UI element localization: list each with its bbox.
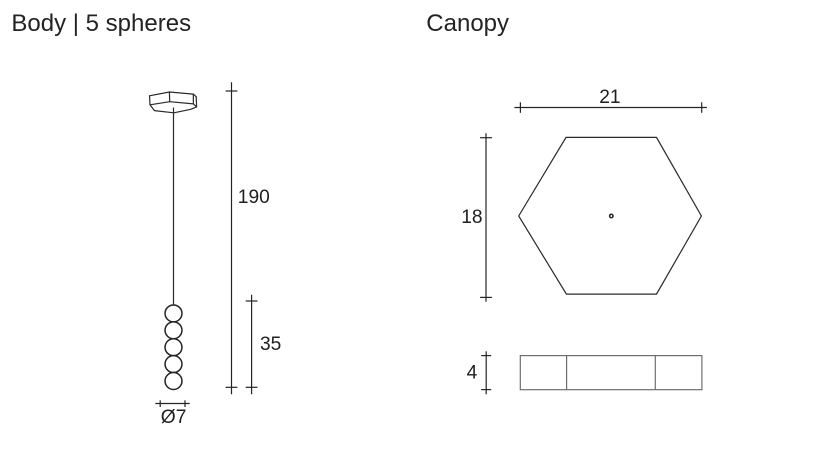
- svg-text:Body | 5 spheres: Body | 5 spheres: [11, 10, 191, 37]
- svg-text:4: 4: [467, 363, 478, 384]
- svg-text:35: 35: [260, 334, 281, 355]
- svg-text:190: 190: [238, 187, 270, 208]
- svg-text:18: 18: [461, 207, 482, 228]
- svg-text:Canopy: Canopy: [426, 10, 509, 37]
- svg-text:21: 21: [599, 87, 620, 108]
- svg-text:Ø7: Ø7: [161, 407, 187, 428]
